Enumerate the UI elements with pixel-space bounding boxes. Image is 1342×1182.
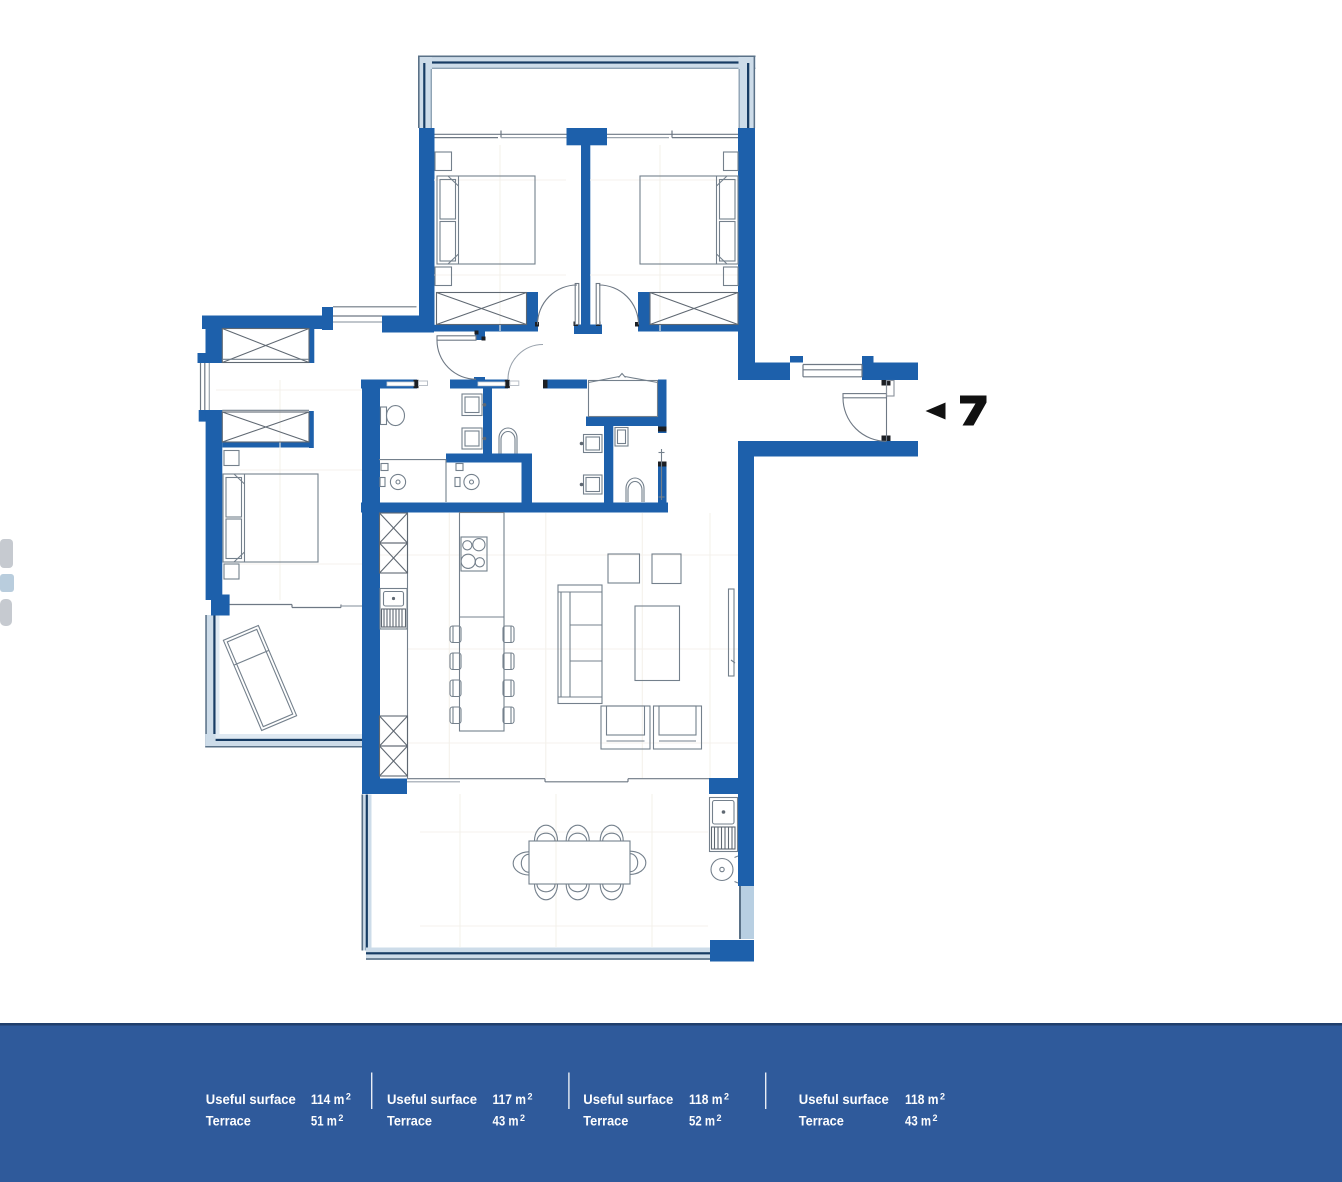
svg-text:52 m: 52 m: [689, 1114, 715, 1130]
svg-text:Useful surface: Useful surface: [583, 1092, 673, 1108]
svg-text:2: 2: [933, 1113, 938, 1123]
svg-text:2: 2: [940, 1092, 945, 1102]
svg-text:Useful surface: Useful surface: [387, 1092, 477, 1108]
svg-text:118 m: 118 m: [689, 1092, 723, 1108]
svg-text:2: 2: [338, 1113, 343, 1123]
svg-text:Terrace: Terrace: [583, 1114, 628, 1130]
svg-text:2: 2: [528, 1092, 533, 1102]
svg-text:118 m: 118 m: [905, 1092, 939, 1108]
svg-text:43 m: 43 m: [493, 1114, 519, 1130]
svg-text:Useful surface: Useful surface: [206, 1092, 296, 1108]
svg-text:2: 2: [717, 1113, 722, 1123]
svg-text:114 m: 114 m: [311, 1092, 345, 1108]
svg-text:51 m: 51 m: [311, 1114, 337, 1130]
svg-text:Terrace: Terrace: [799, 1114, 844, 1130]
svg-text:2: 2: [520, 1113, 525, 1123]
svg-text:2: 2: [346, 1092, 351, 1102]
svg-text:Terrace: Terrace: [387, 1114, 432, 1130]
svg-text:Useful surface: Useful surface: [799, 1092, 889, 1108]
svg-text:43 m: 43 m: [905, 1114, 931, 1130]
svg-text:Terrace: Terrace: [206, 1114, 251, 1130]
svg-text:117 m: 117 m: [493, 1092, 527, 1108]
svg-text:2: 2: [724, 1092, 729, 1102]
